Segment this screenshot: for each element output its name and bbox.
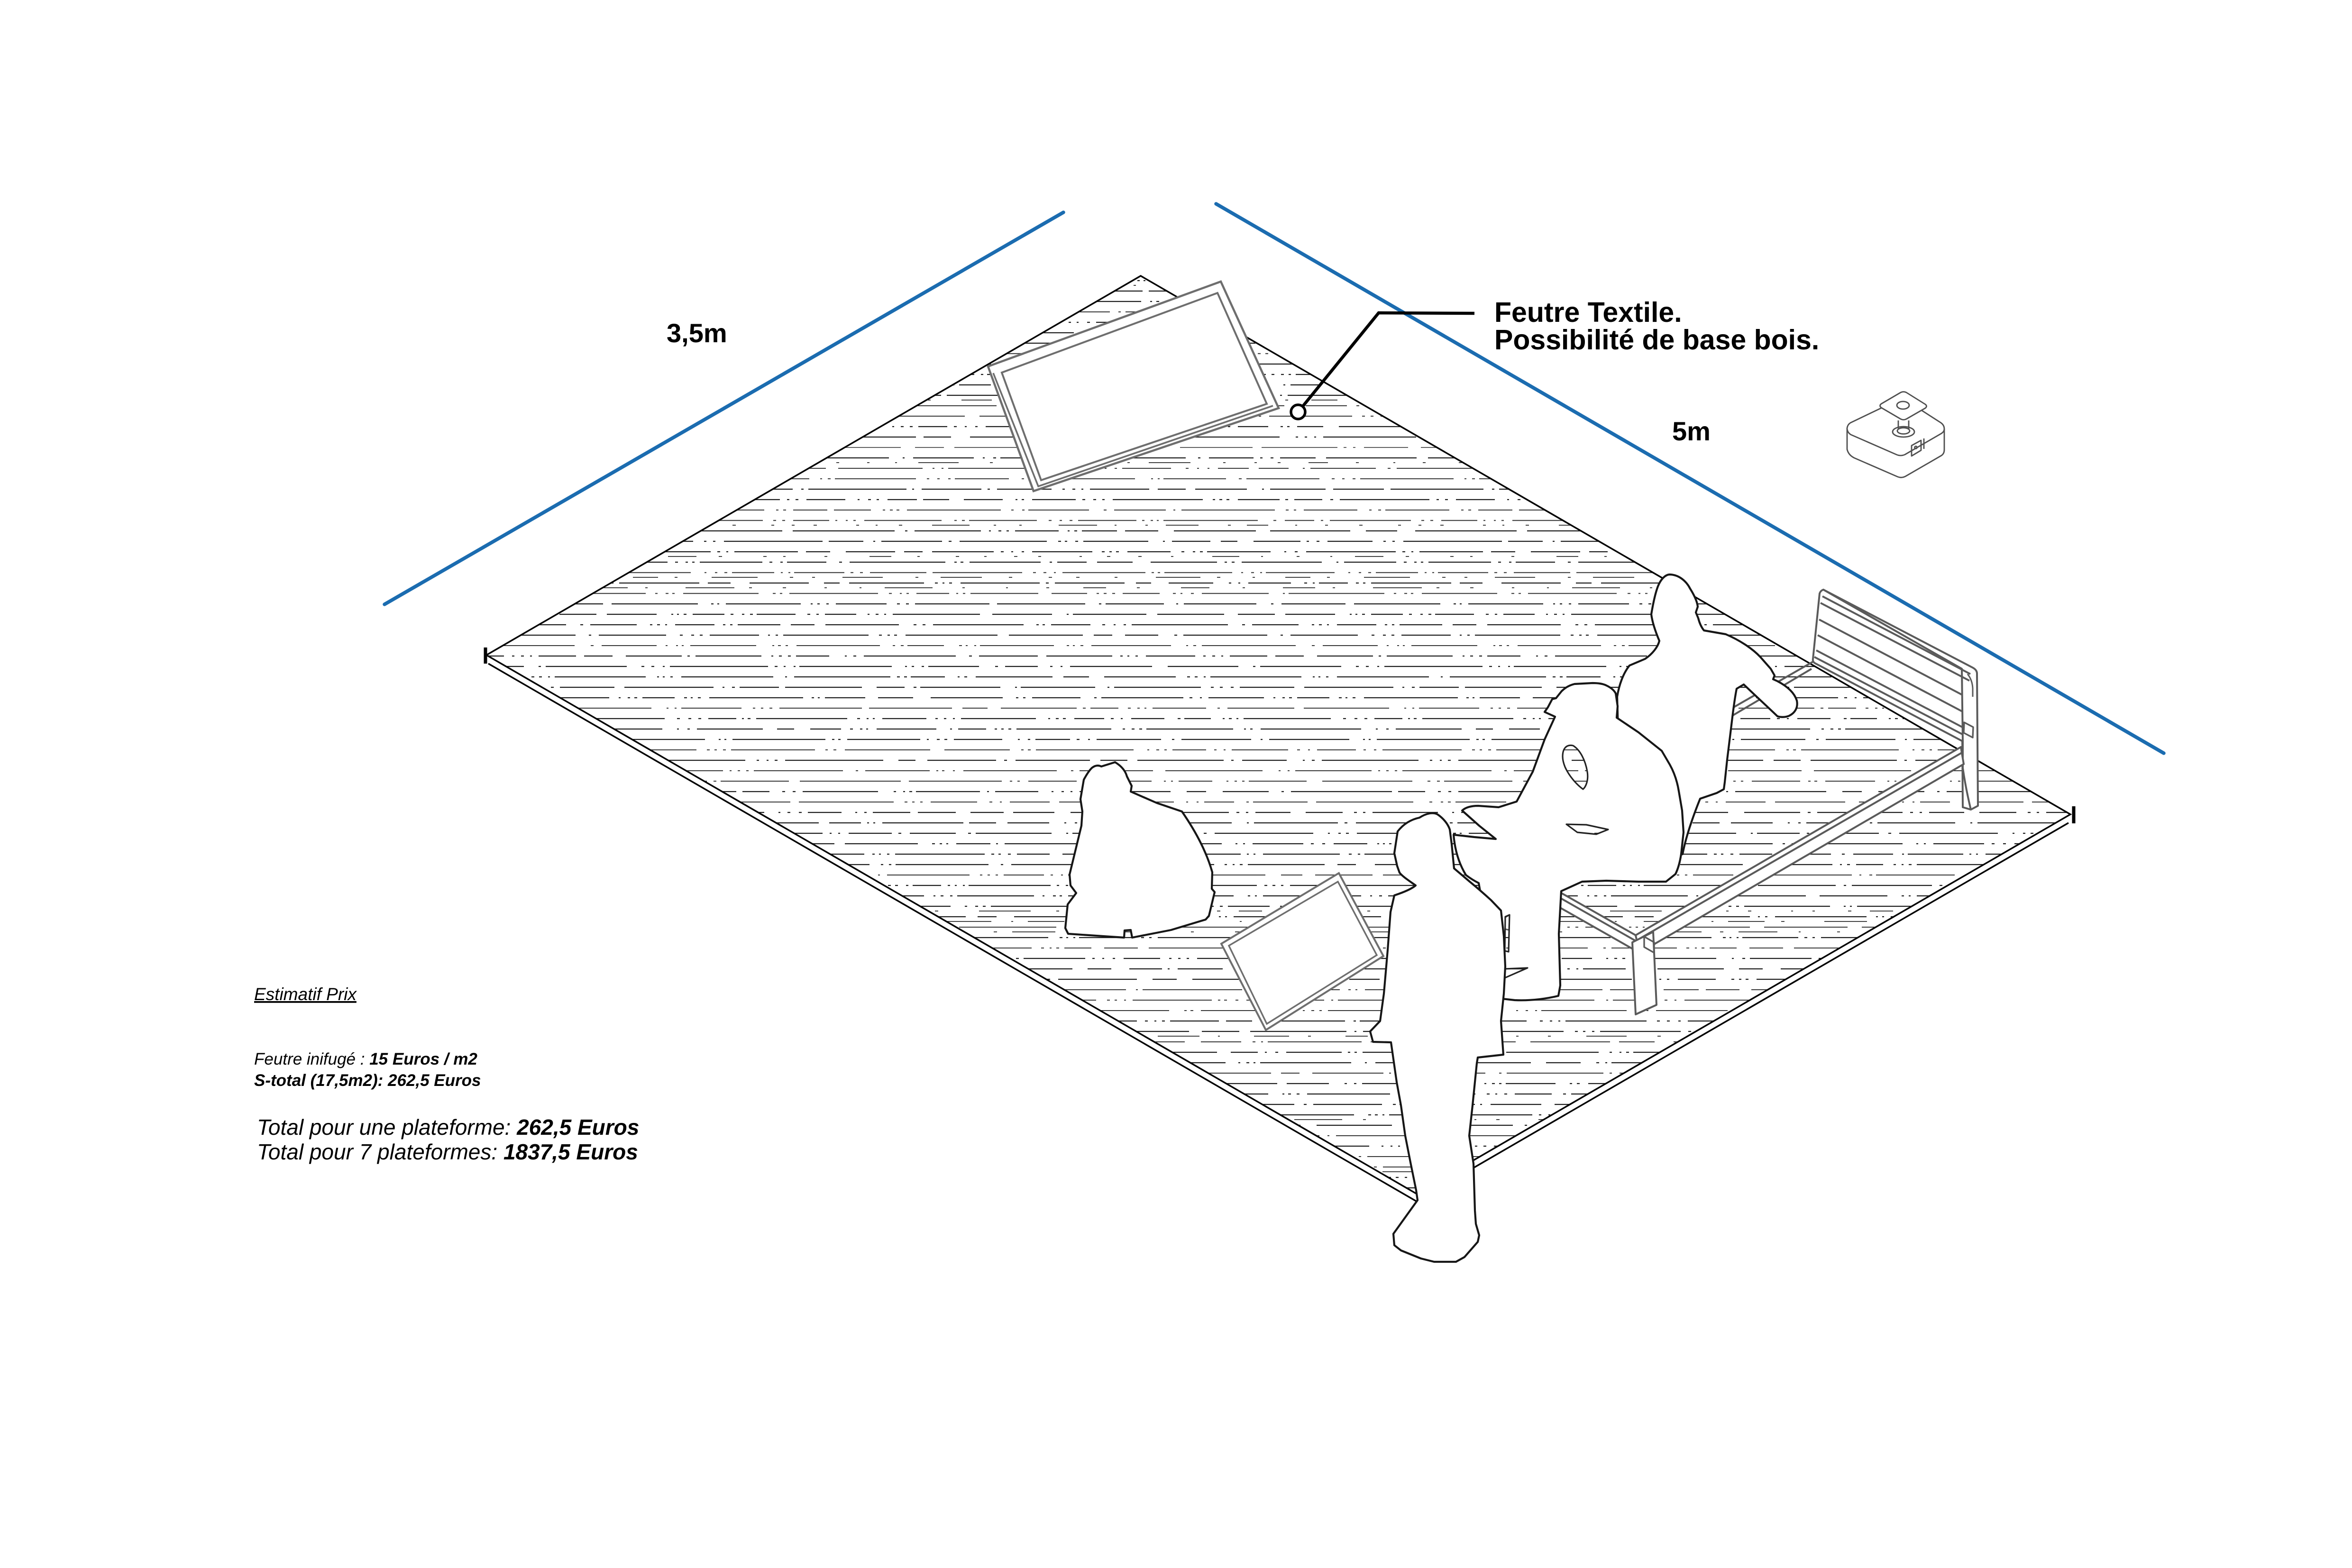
svg-text:Estimatif Prix: Estimatif Prix bbox=[254, 985, 357, 1004]
svg-text:Total pour une plateforme: 262: Total pour une plateforme: 262,5 Euros bbox=[257, 1115, 639, 1140]
svg-text:Feutre Textile.: Feutre Textile. bbox=[1494, 297, 1682, 328]
svg-text:Total pour 7 plateformes: 1837: Total pour 7 plateformes: 1837,5 Euros bbox=[257, 1140, 638, 1164]
svg-text:3,5m: 3,5m bbox=[667, 318, 727, 348]
svg-text:5m: 5m bbox=[1672, 416, 1711, 446]
svg-text:S-total (17,5m2): 262,5 Euros: S-total (17,5m2): 262,5 Euros bbox=[254, 1071, 481, 1090]
svg-text:Possibilité de base bois.: Possibilité de base bois. bbox=[1494, 324, 1819, 356]
svg-text:Feutre inifugé : 15 Euros / m2: Feutre inifugé : 15 Euros / m2 bbox=[254, 1050, 477, 1068]
